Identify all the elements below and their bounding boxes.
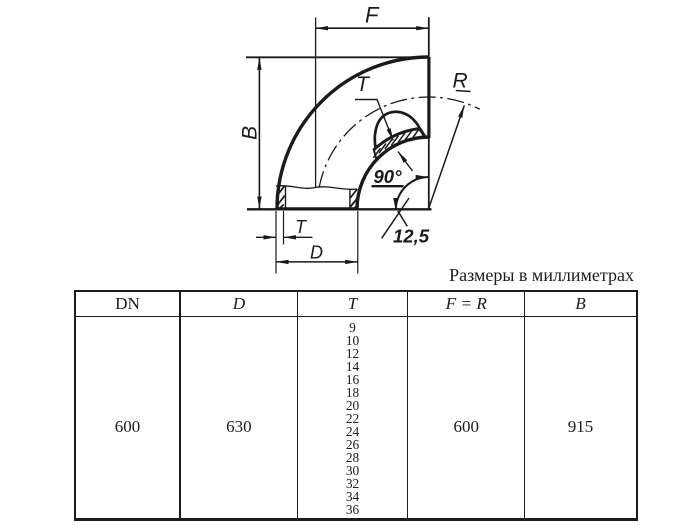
svg-text:R: R — [453, 69, 468, 92]
svg-text:12,5: 12,5 — [393, 226, 430, 247]
svg-text:B: B — [238, 126, 261, 140]
svg-text:T: T — [356, 73, 371, 96]
svg-text:D: D — [310, 243, 323, 263]
svg-text:F: F — [365, 2, 380, 27]
svg-text:T: T — [295, 217, 308, 237]
svg-text:90°: 90° — [374, 166, 403, 187]
